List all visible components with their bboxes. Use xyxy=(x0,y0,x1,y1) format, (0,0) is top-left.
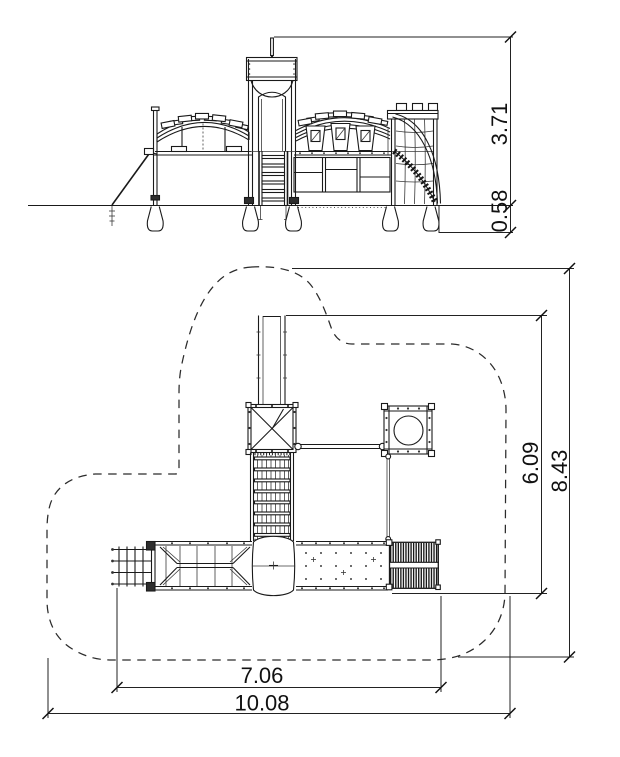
plan-dimension-lines xyxy=(43,263,576,719)
tower-dome xyxy=(251,81,293,98)
climbing-net-plan xyxy=(251,453,294,542)
bridge-deck-plan xyxy=(147,542,253,592)
tower-roof-plan xyxy=(246,403,298,455)
drawing-sheet: 3.71 0.58 xyxy=(0,0,620,757)
tower-ladder xyxy=(259,151,289,220)
foundation-footings xyxy=(147,207,439,232)
hanging-pod xyxy=(356,126,375,151)
roller-block-plan xyxy=(386,540,440,590)
elevation-view: 3.71 0.58 xyxy=(28,32,516,239)
safety-zone-boundary xyxy=(47,267,506,660)
technical-drawing-canvas: 3.71 0.58 xyxy=(0,0,620,757)
tower-finial xyxy=(271,38,274,56)
hanging-pod xyxy=(306,126,325,151)
transfer-beam-plan xyxy=(295,443,386,449)
dim-label-safety-zone-depth: 8.43 xyxy=(547,450,572,493)
plan-view: 6.09 8.43 7.06 10.08 xyxy=(43,263,576,719)
grid-climber-plan xyxy=(111,547,151,587)
dim-label-overall-height: 3.71 xyxy=(487,103,512,146)
platform-plan xyxy=(296,542,388,591)
castle-net-climber xyxy=(388,104,439,206)
crawl-tube-tower-plan xyxy=(382,404,435,457)
center-tower xyxy=(245,38,299,206)
dim-label-safety-zone-width: 10.08 xyxy=(234,691,289,716)
arch-bridge-right xyxy=(294,111,392,155)
arch-bridge-left xyxy=(153,113,253,155)
dim-label-foundation-depth: 0.58 xyxy=(487,190,512,233)
center-pod-plan xyxy=(252,536,294,595)
drop-post-plan xyxy=(386,454,391,541)
support-post-left xyxy=(151,107,160,206)
dim-label-equipment-width: 7.06 xyxy=(241,663,284,688)
under-deck-panels xyxy=(294,158,390,208)
tower-doorway xyxy=(259,92,286,151)
dim-label-equipment-depth: 6.09 xyxy=(518,442,543,485)
slide-chute-plan xyxy=(257,316,288,405)
